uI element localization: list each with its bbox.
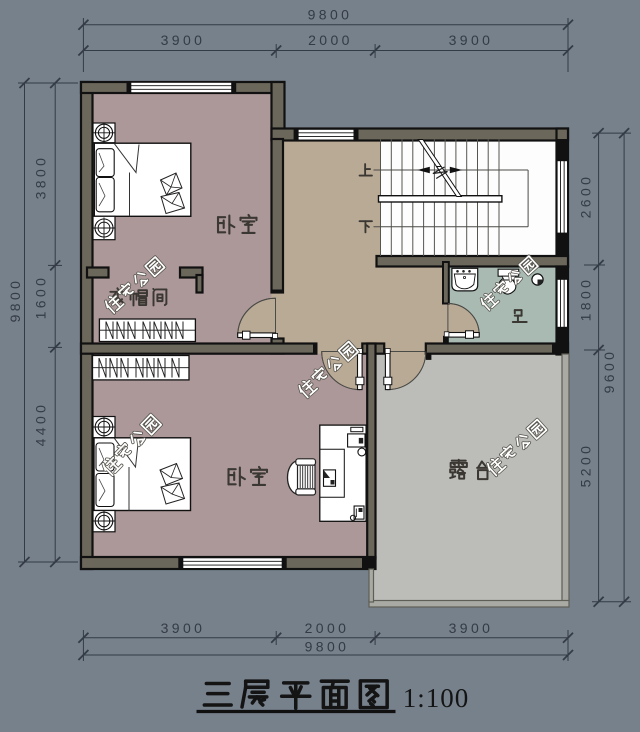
svg-text:2600: 2600	[578, 174, 594, 219]
svg-text:9800: 9800	[7, 278, 23, 323]
svg-text:2000: 2000	[305, 620, 350, 636]
svg-text:3900: 3900	[449, 620, 494, 636]
svg-text:3900: 3900	[161, 620, 206, 636]
svg-text:9800: 9800	[305, 639, 350, 655]
svg-text:3900: 3900	[161, 32, 206, 48]
svg-text:3900: 3900	[449, 32, 494, 48]
svg-text:5200: 5200	[578, 443, 594, 488]
svg-text:9600: 9600	[601, 349, 617, 394]
svg-text:3800: 3800	[33, 155, 49, 200]
svg-text:2000: 2000	[308, 32, 353, 48]
svg-text:1:100: 1:100	[403, 683, 470, 713]
svg-text:9800: 9800	[308, 7, 353, 23]
svg-text:4400: 4400	[33, 402, 49, 447]
svg-text:1800: 1800	[578, 277, 594, 322]
svg-text:1600: 1600	[33, 275, 49, 320]
